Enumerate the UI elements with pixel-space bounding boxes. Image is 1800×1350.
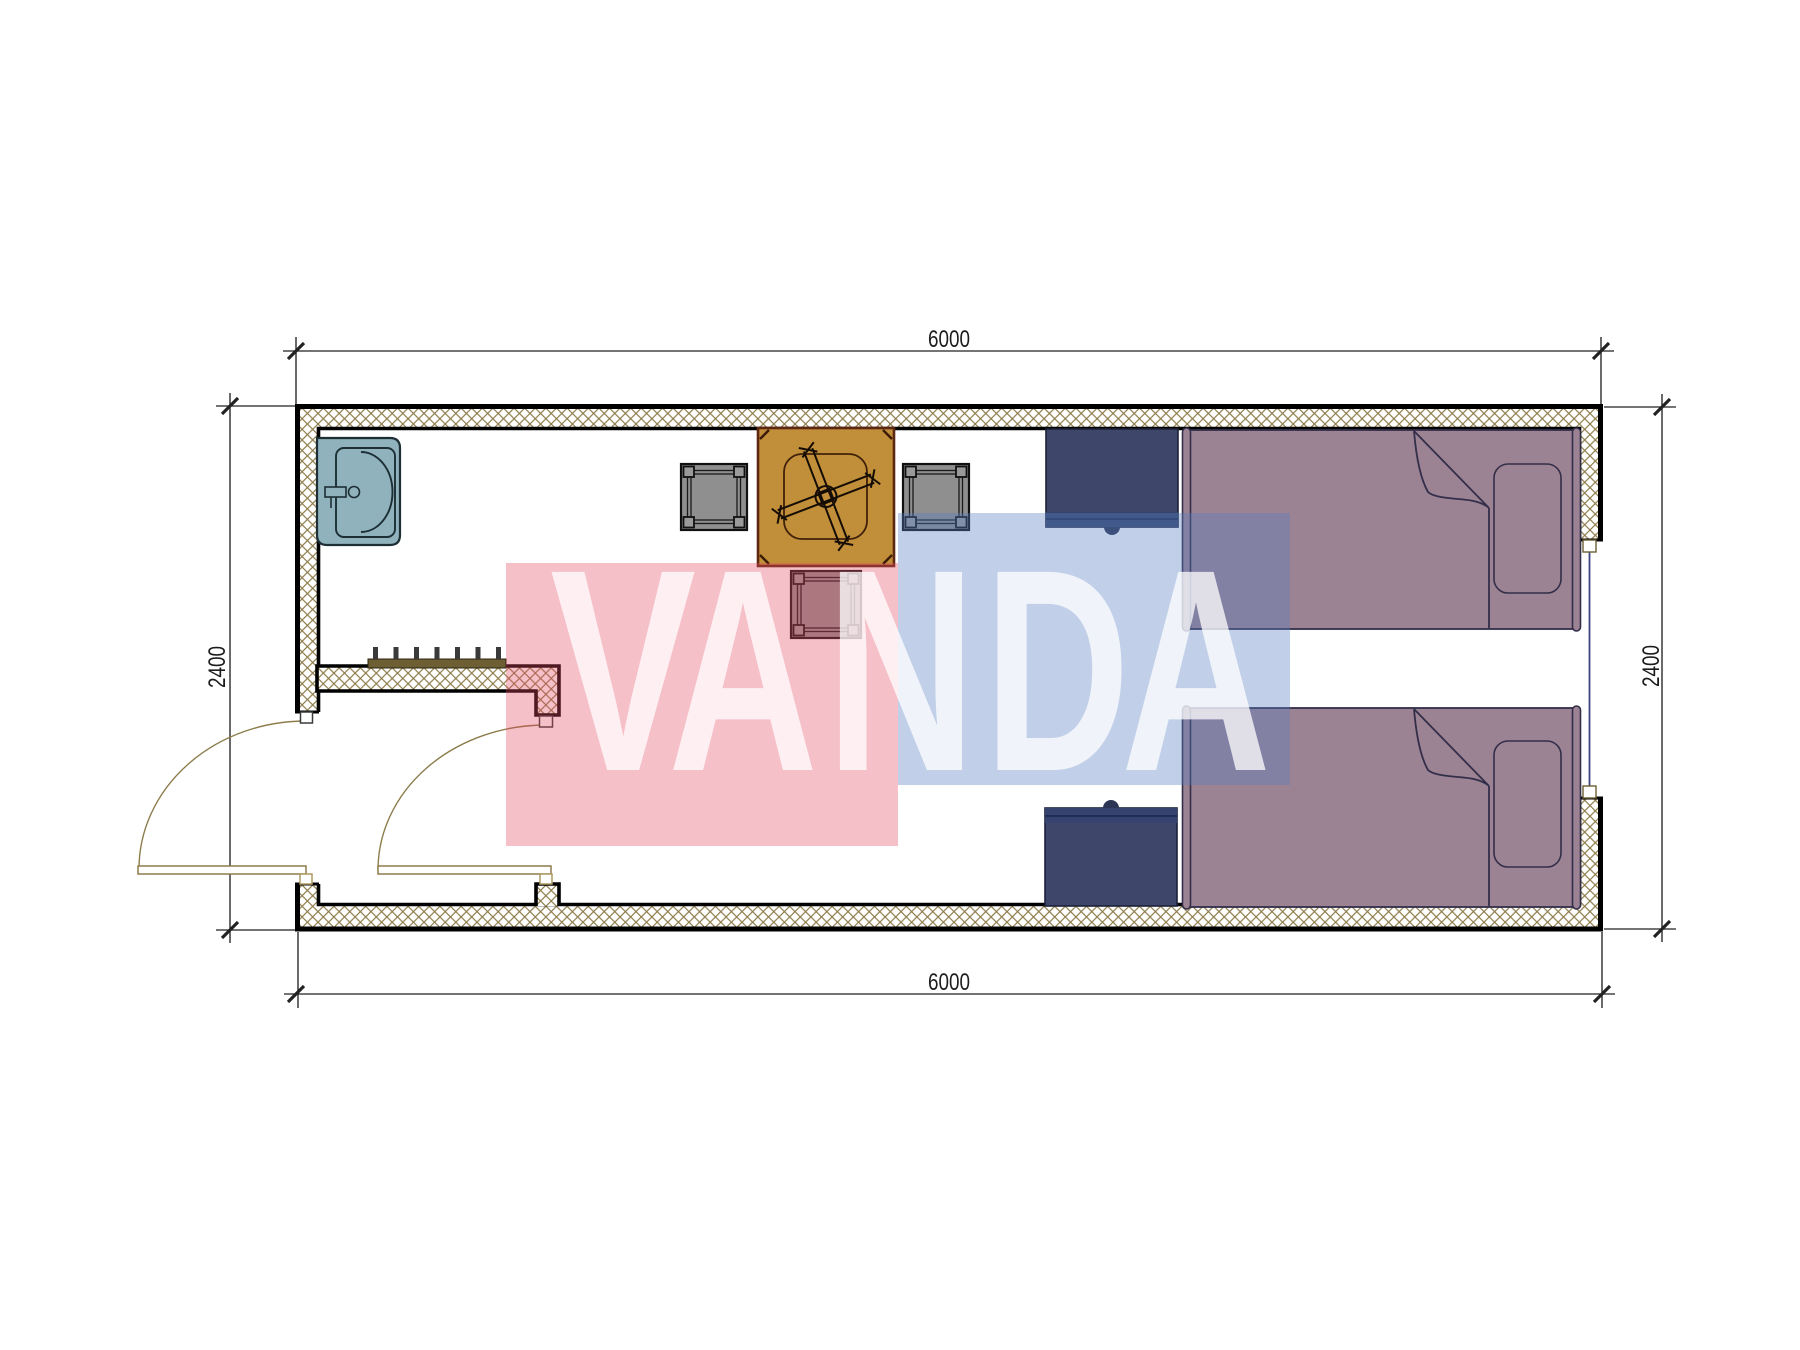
svg-text:A: A: [1121, 510, 1271, 832]
svg-text:2400: 2400: [1638, 645, 1665, 687]
svg-text:6000: 6000: [928, 326, 970, 353]
svg-text:N: N: [826, 510, 976, 832]
svg-text:6000: 6000: [928, 969, 970, 996]
svg-text:D: D: [984, 510, 1130, 832]
svg-text:2400: 2400: [204, 646, 231, 688]
svg-text:A: A: [668, 510, 818, 832]
